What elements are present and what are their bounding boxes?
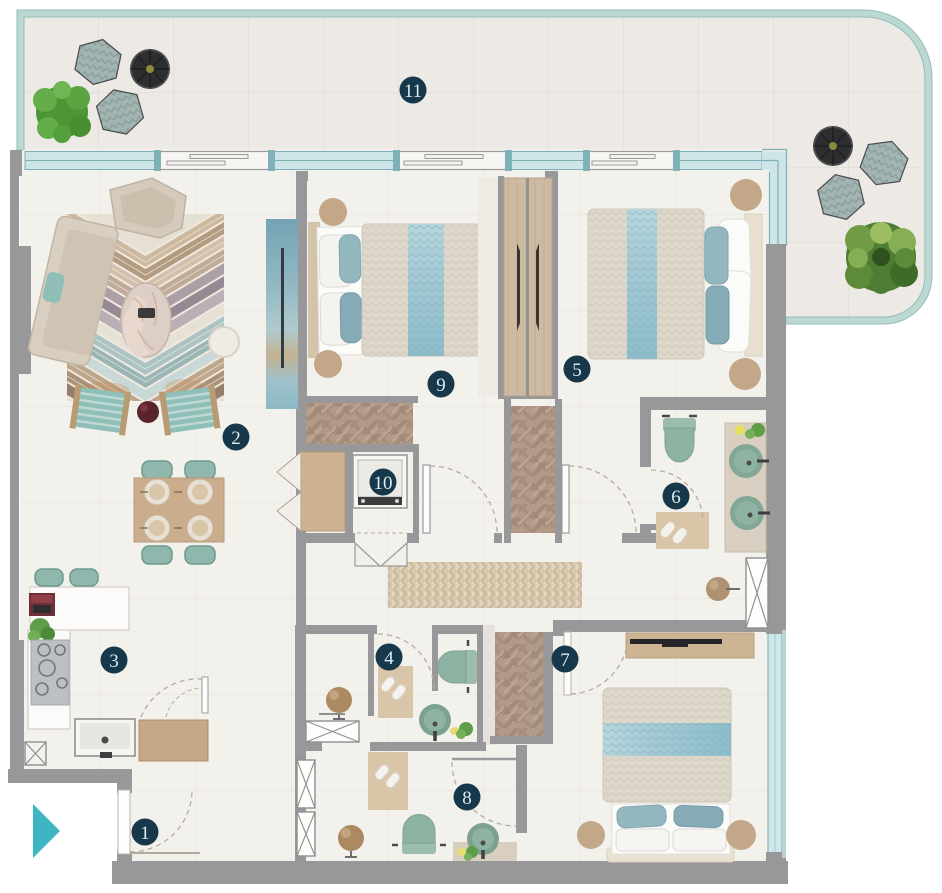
svg-text:6: 6 (671, 487, 681, 508)
svg-text:8: 8 (462, 788, 472, 809)
svg-text:10: 10 (374, 473, 393, 494)
svg-text:4: 4 (384, 648, 394, 669)
svg-text:3: 3 (109, 651, 119, 672)
svg-text:9: 9 (436, 375, 446, 396)
svg-text:5: 5 (572, 360, 582, 381)
svg-text:1: 1 (140, 823, 150, 844)
svg-text:11: 11 (404, 81, 422, 102)
svg-text:2: 2 (231, 428, 241, 449)
svg-text:7: 7 (560, 650, 570, 671)
